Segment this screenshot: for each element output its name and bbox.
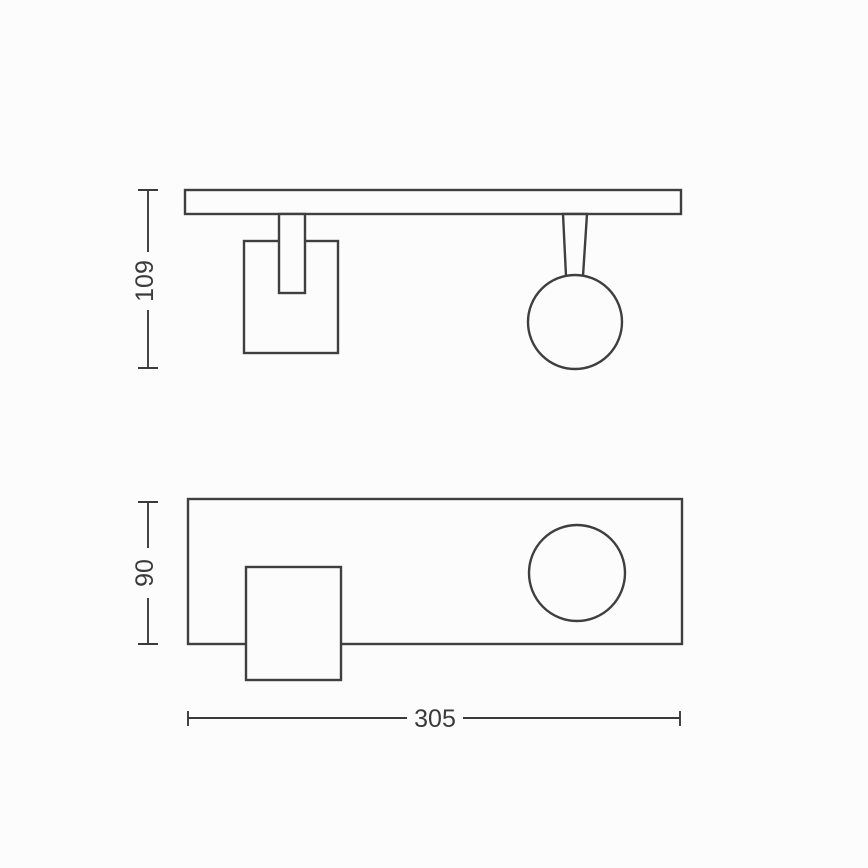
dimension-drawing-page: 109 90 305: [0, 0, 868, 868]
dim-width-label: 305: [414, 705, 456, 733]
dimension-height: 109: [131, 190, 159, 368]
square-spot-head-plan: [246, 567, 341, 680]
round-spot-head-side: [528, 275, 622, 369]
mounting-bar-side: [185, 190, 681, 214]
dimension-width: 305: [188, 705, 680, 733]
drawing-svg: 109 90 305: [0, 0, 868, 868]
plan-view: [188, 499, 682, 680]
side-elevation-view: [185, 190, 681, 369]
dimension-depth: 90: [131, 502, 159, 644]
square-spot-stem: [279, 214, 305, 293]
dim-height-label: 109: [131, 260, 159, 302]
dim-depth-label: 90: [131, 559, 159, 587]
round-spot-stem: [563, 214, 587, 276]
round-spot-head-plan: [529, 525, 625, 621]
